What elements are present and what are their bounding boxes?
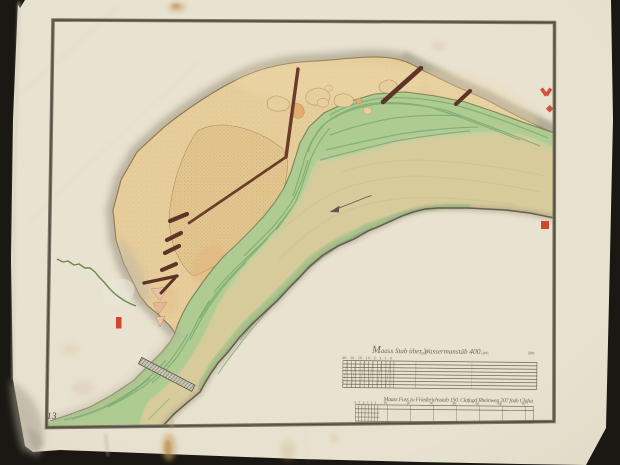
- svg-text:13: 13: [47, 411, 57, 421]
- svg-text:300.: 300.: [482, 350, 489, 355]
- svg-text:40. 30. 20. 10. 5. 3. 1. 0: 40. 30. 20. 10. 5. 3. 1. 0: [342, 356, 392, 361]
- svg-text:6 5 4 3 2 1: 6 5 4 3 2 1: [354, 401, 376, 405]
- svg-text:500.: 500.: [528, 350, 535, 355]
